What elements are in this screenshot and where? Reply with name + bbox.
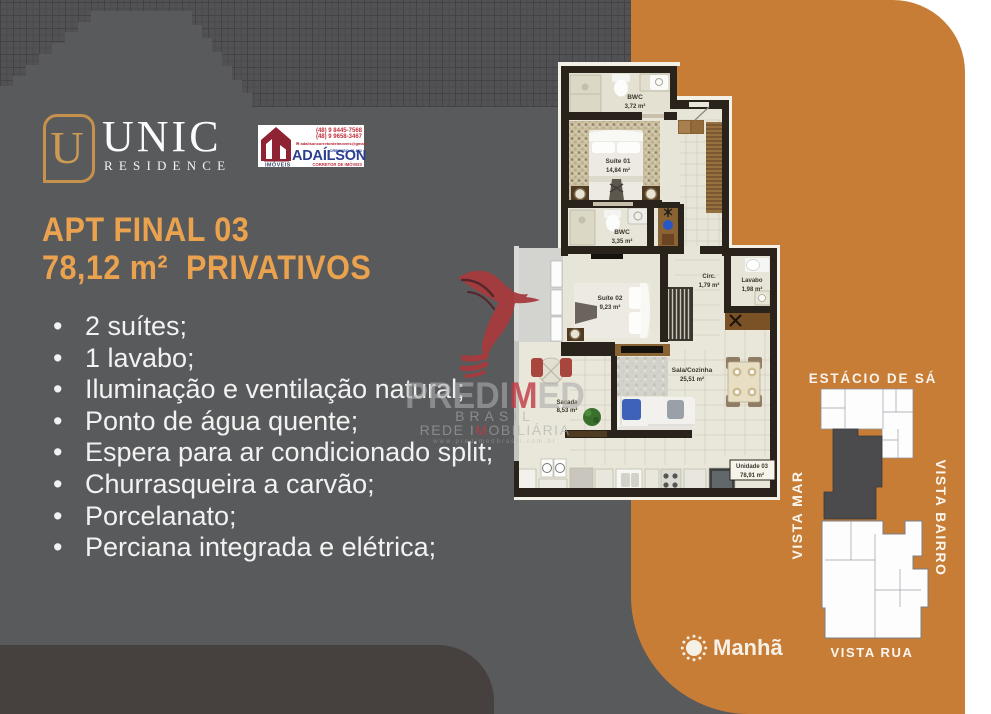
svg-text:Sala/Cozinha: Sala/Cozinha xyxy=(672,367,713,374)
svg-text:Lavabo: Lavabo xyxy=(741,278,762,284)
svg-text:25,51 m²: 25,51 m² xyxy=(680,376,704,383)
svg-text:BWC: BWC xyxy=(614,229,630,236)
svg-text:Suíte 02: Suíte 02 xyxy=(598,295,623,302)
svg-text:3,72 m²: 3,72 m² xyxy=(625,103,646,110)
svg-text:14,84 m²: 14,84 m² xyxy=(606,167,630,174)
svg-text:Circ.: Circ. xyxy=(702,274,716,280)
svg-text:3,35 m²: 3,35 m² xyxy=(612,238,633,245)
svg-text:9,23 m²: 9,23 m² xyxy=(600,304,621,311)
svg-text:BWC: BWC xyxy=(627,94,643,101)
svg-text:Unidade 03: Unidade 03 xyxy=(736,464,769,470)
svg-text:78,91 m²: 78,91 m² xyxy=(740,472,764,479)
svg-text:1,79 m²: 1,79 m² xyxy=(699,282,720,289)
svg-text:Suíte 01: Suíte 01 xyxy=(606,158,631,165)
svg-text:1,98 m²: 1,98 m² xyxy=(742,286,763,293)
